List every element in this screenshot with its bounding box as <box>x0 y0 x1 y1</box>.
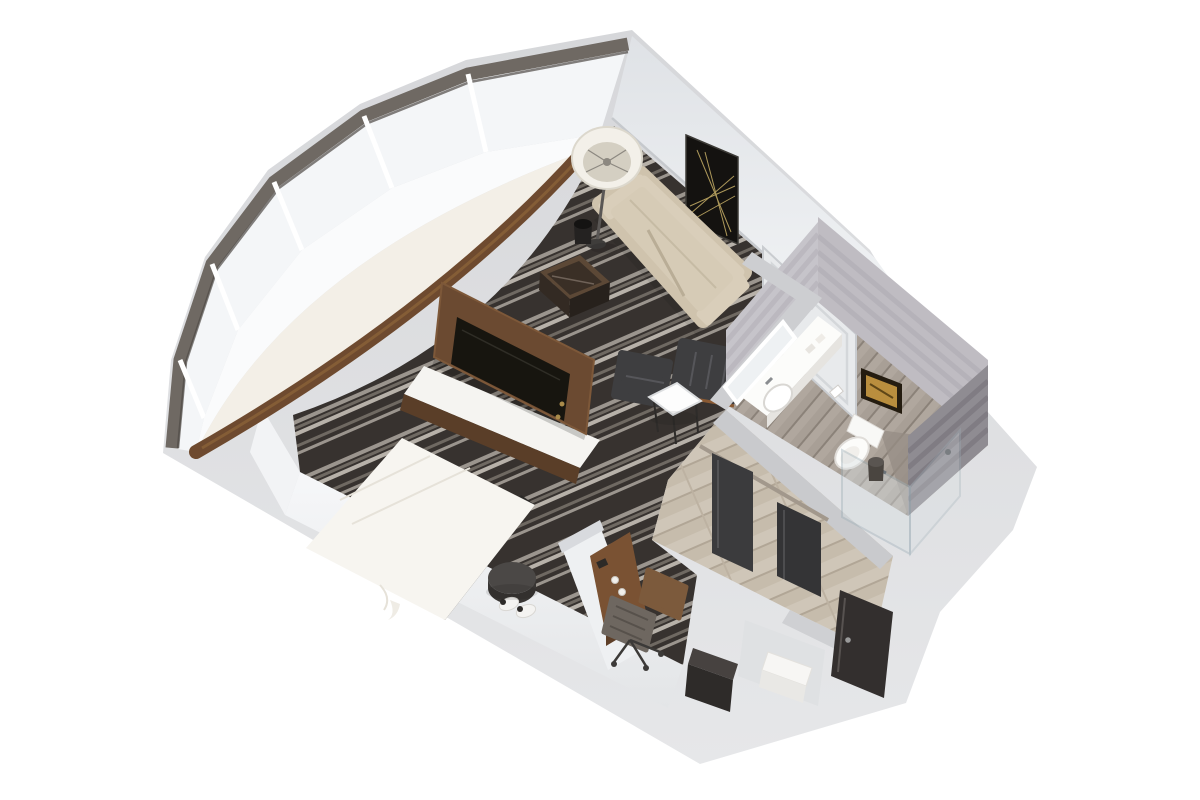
shower-head <box>945 449 951 455</box>
bath-bin-rim <box>868 457 884 467</box>
chair-caster <box>611 661 617 667</box>
waste-bin-bath <box>868 457 884 481</box>
desk-cup <box>612 577 619 584</box>
slipper-toe <box>500 599 506 605</box>
chair-caster <box>658 651 664 657</box>
tv-button <box>560 402 565 407</box>
bed-fold-tail <box>388 600 400 620</box>
tv-button <box>556 415 561 420</box>
desk-cup <box>619 589 626 596</box>
bin-rim <box>574 219 592 229</box>
entry-door-handle <box>845 637 851 643</box>
lamp-bulb <box>603 158 611 166</box>
floorplan-svg: 3D cutaway floor plan render of a hotel … <box>0 0 1200 800</box>
waste-bin-living <box>574 219 592 244</box>
chair-caster <box>643 665 649 671</box>
floorplan-render: 3D cutaway floor plan render of a hotel … <box>0 0 1200 800</box>
slipper-toe <box>517 606 523 612</box>
